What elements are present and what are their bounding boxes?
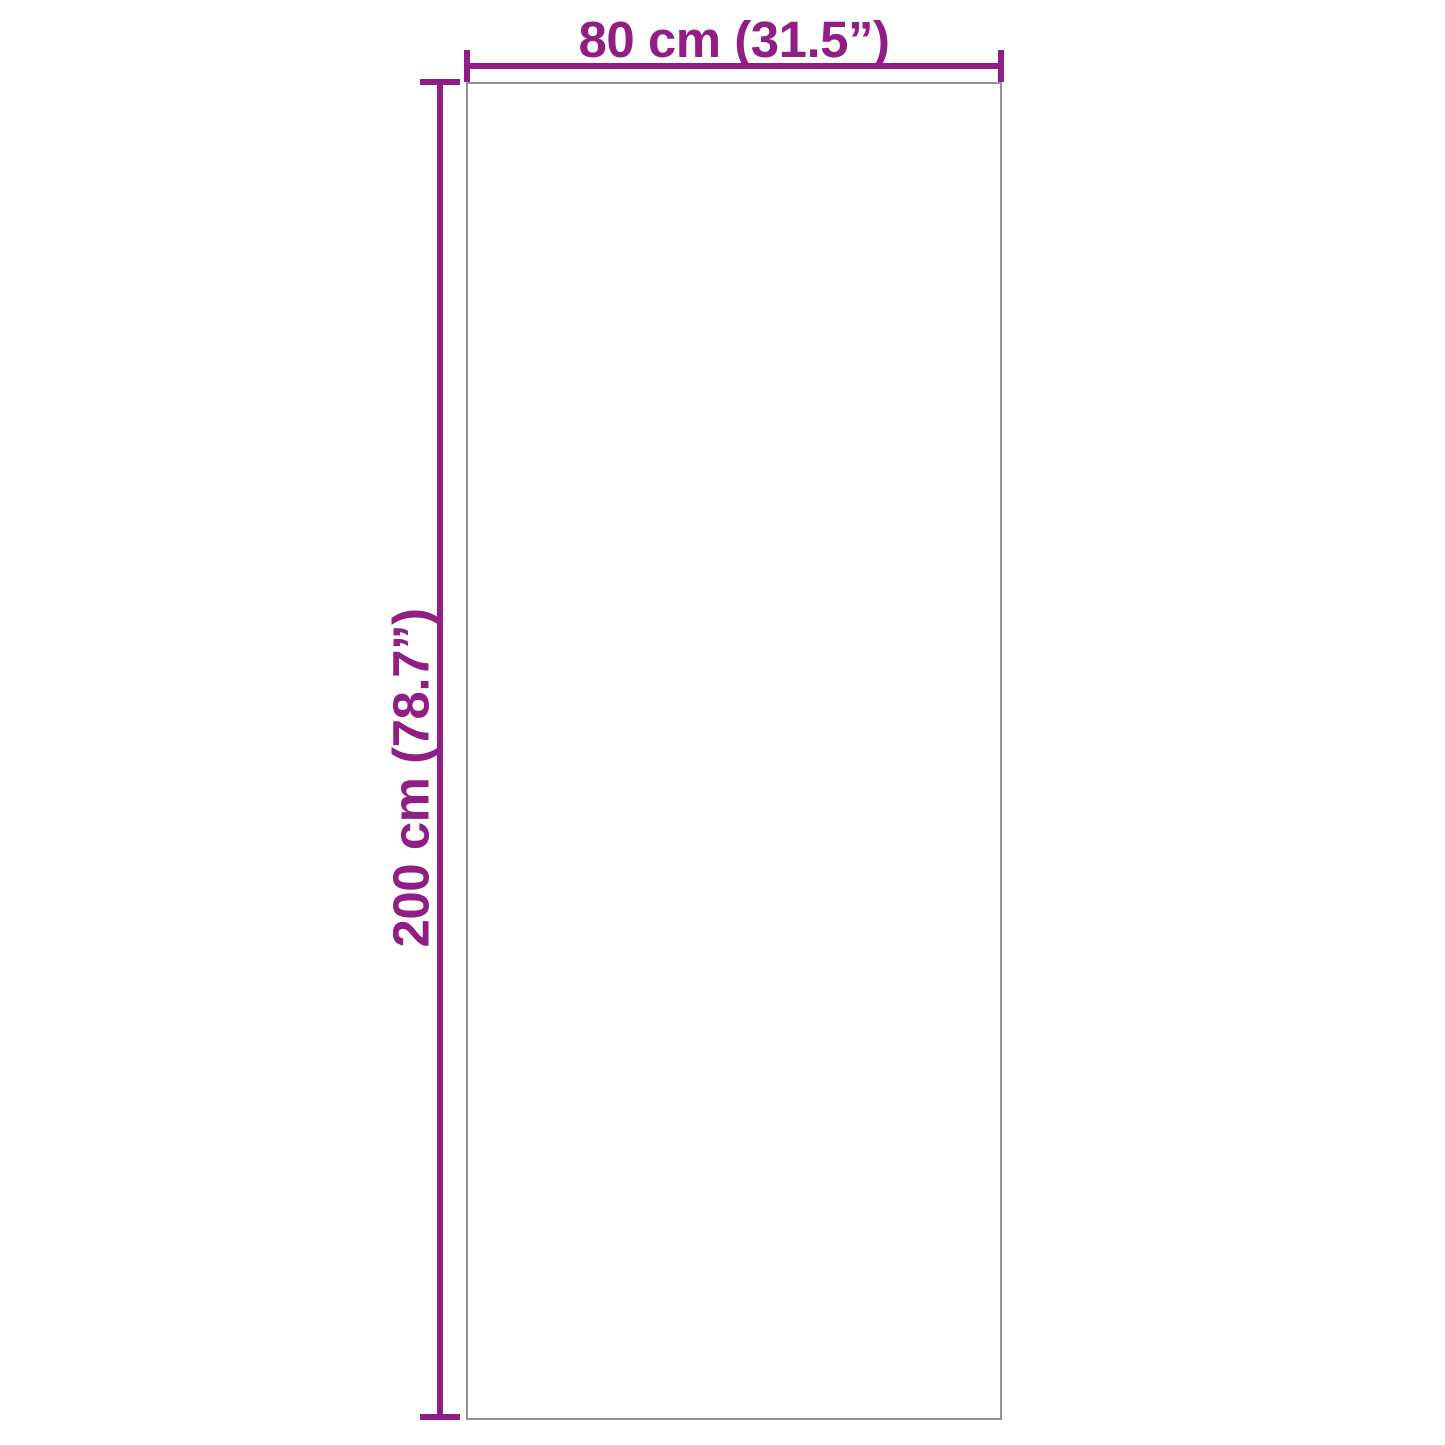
dimension-diagram: 80 cm (31.5”) 200 cm (78.7”)	[0, 0, 1445, 1445]
height-dimension-cap-bottom	[420, 1414, 460, 1420]
height-dimension-label: 200 cm (78.7”)	[386, 609, 437, 948]
width-dimension-label: 80 cm (31.5”)	[464, 14, 1004, 65]
height-dimension-cap-top	[420, 79, 460, 85]
product-outline	[466, 82, 1002, 1420]
